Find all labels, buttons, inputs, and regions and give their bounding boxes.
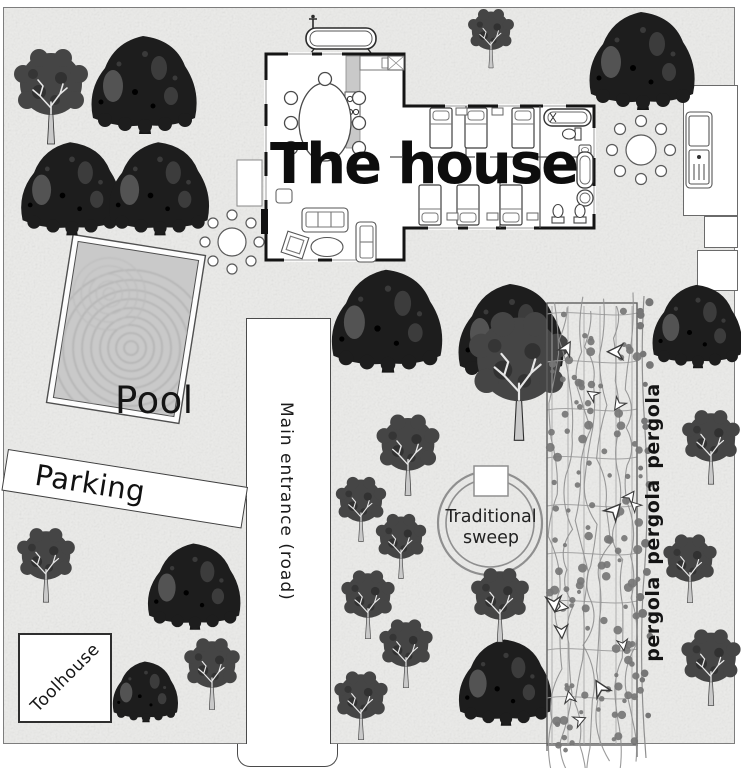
toolhouse: Toolhouse xyxy=(18,633,112,723)
house-label: The house xyxy=(270,132,577,197)
map-canvas xyxy=(3,7,735,744)
pergola-label-1: pergola xyxy=(642,383,664,469)
outdoor-kitchen-strip xyxy=(683,85,738,216)
outdoor-kitchen-box-2 xyxy=(697,250,738,291)
pool-label: Pool xyxy=(115,379,194,422)
pergola-label-2: pergola xyxy=(642,479,664,565)
sweep-line-1: Traditional xyxy=(445,507,536,527)
garden-site-plan: Parking Toolhouse xyxy=(0,0,741,768)
sweep-line-2: sweep xyxy=(463,528,519,548)
road-exit-stub xyxy=(237,744,338,767)
outdoor-kitchen-box xyxy=(704,216,738,248)
traditional-sweep-label: Traditional sweep xyxy=(443,507,539,549)
pergola-label-3: pergola xyxy=(642,576,664,662)
ground-texture xyxy=(4,8,734,743)
toolhouse-label: Toolhouse xyxy=(27,640,104,717)
road-label: Main entrance (road) xyxy=(276,402,296,601)
